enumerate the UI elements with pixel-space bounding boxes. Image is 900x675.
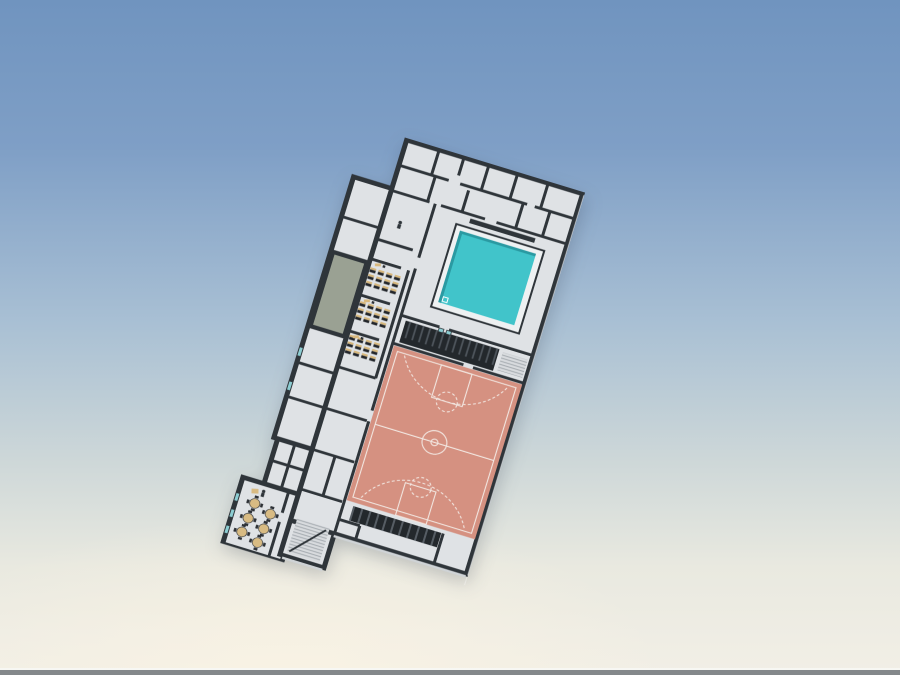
serving-table	[251, 489, 258, 494]
render-canvas	[0, 0, 900, 675]
ground-strip	[0, 668, 900, 675]
